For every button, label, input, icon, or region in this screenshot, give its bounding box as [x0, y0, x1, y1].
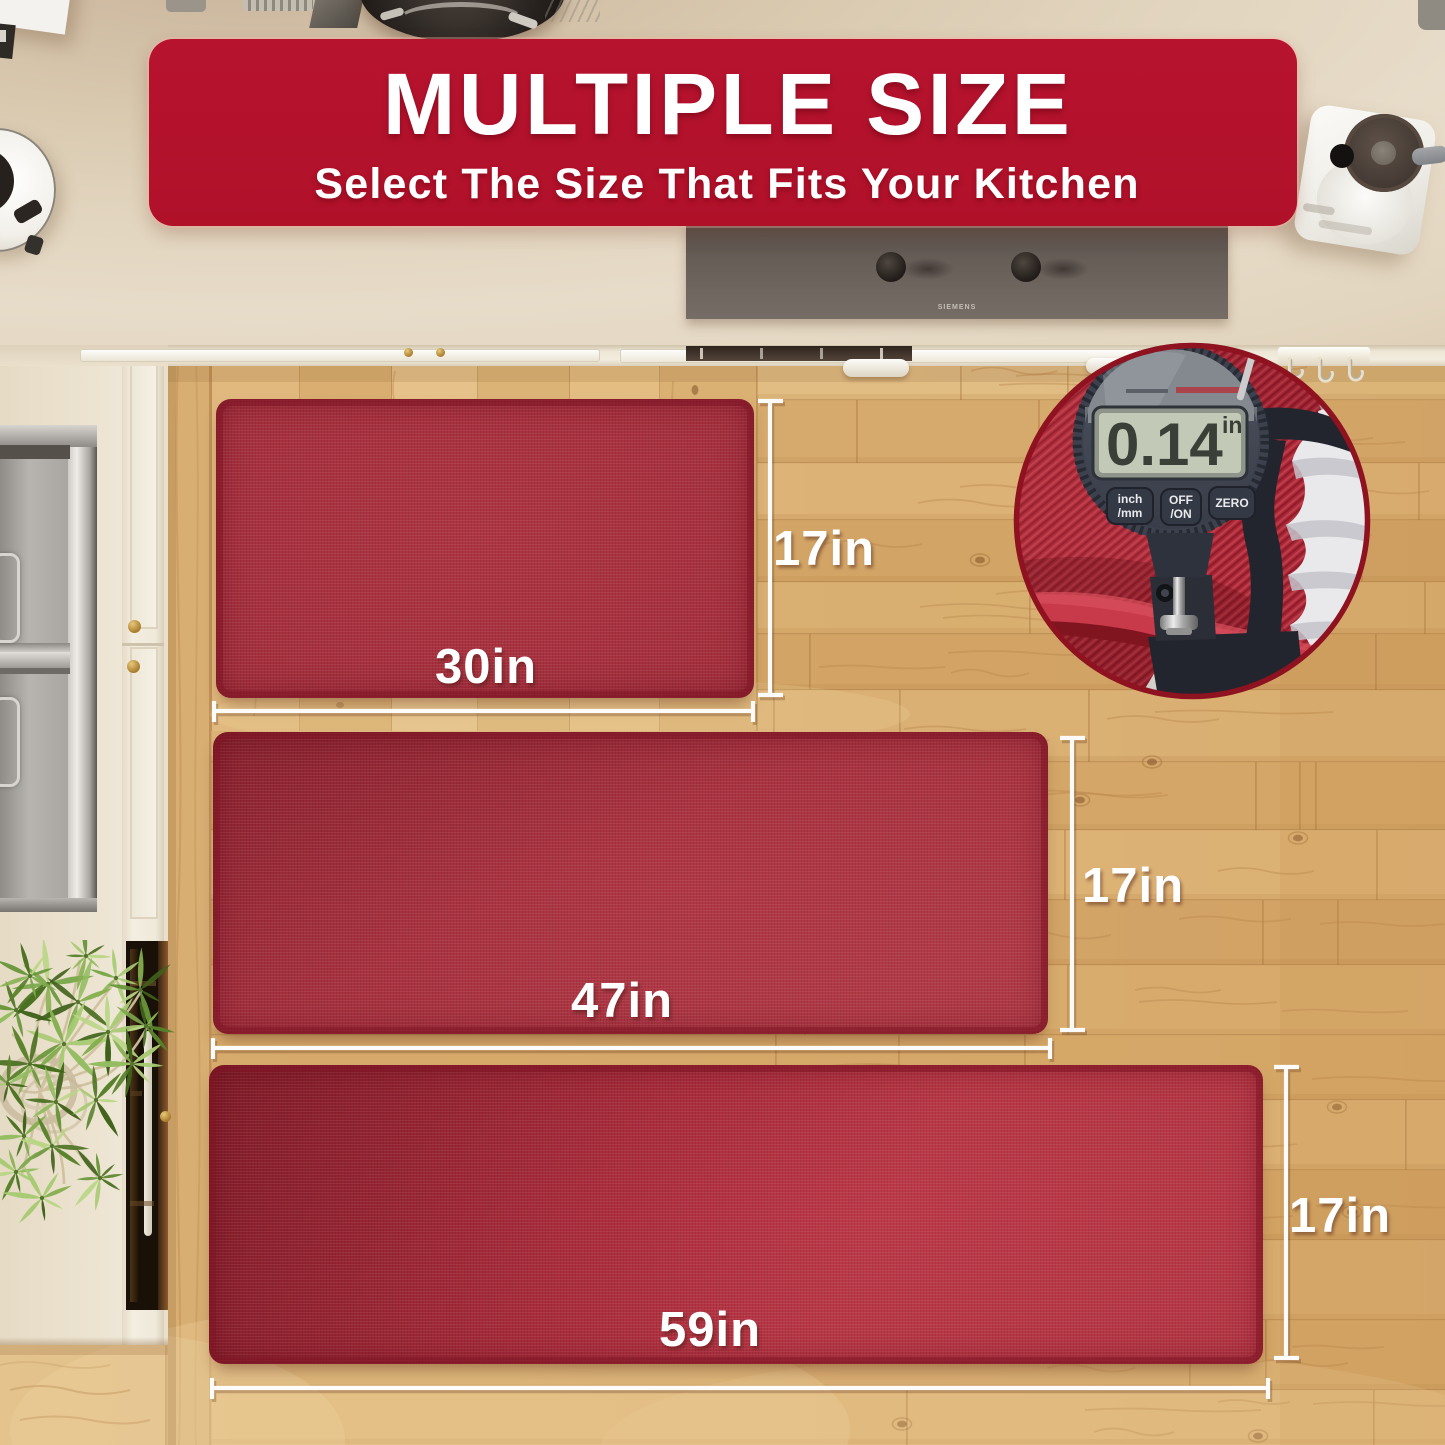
svg-text:ZERO: ZERO: [1215, 496, 1248, 510]
svg-text:/mm: /mm: [1118, 506, 1143, 520]
svg-text:in: in: [1222, 412, 1242, 438]
svg-text:/ON: /ON: [1170, 507, 1191, 521]
svg-text:inch: inch: [1118, 492, 1143, 506]
svg-text:0.14: 0.14: [1106, 411, 1223, 478]
svg-text:OFF: OFF: [1169, 493, 1193, 507]
